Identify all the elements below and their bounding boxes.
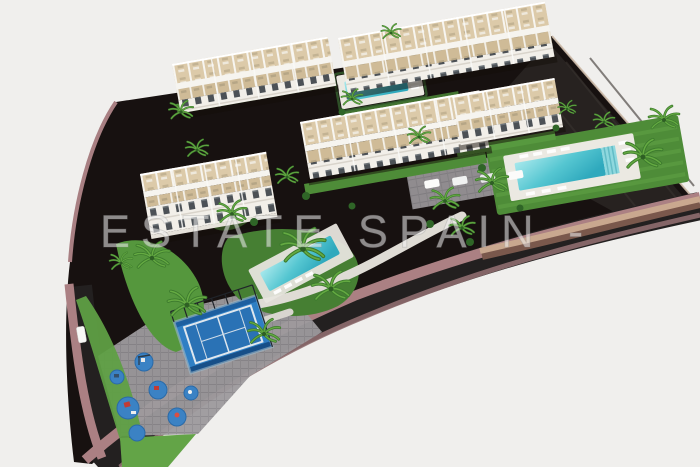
render-canvas: ESTATE SPAIN - [0, 0, 700, 467]
site-plan-svg [0, 0, 700, 467]
